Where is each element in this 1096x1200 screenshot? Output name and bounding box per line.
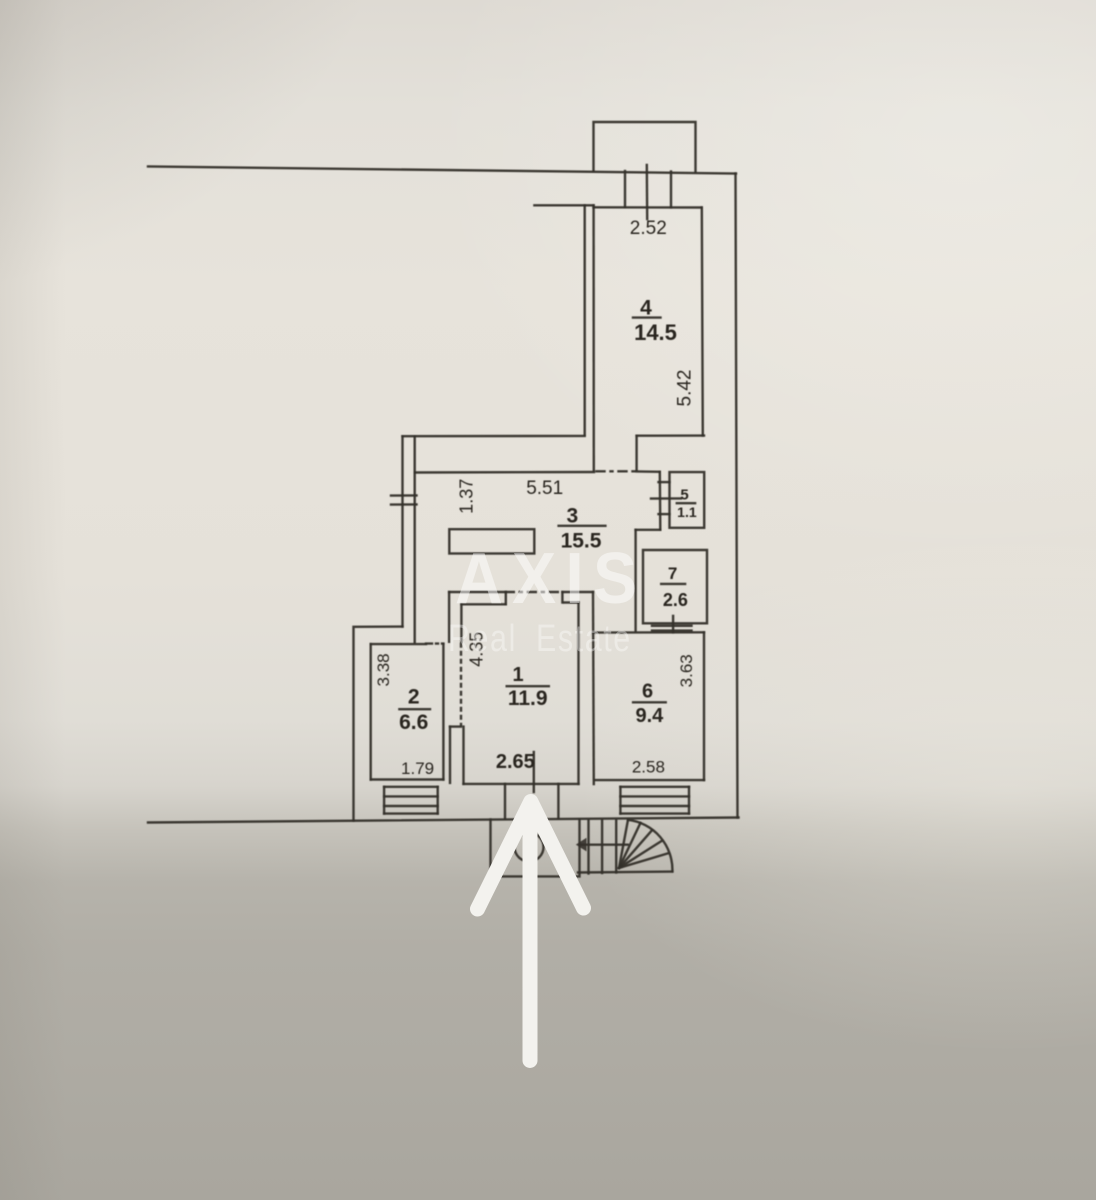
svg-text:2.65: 2.65 <box>496 751 535 773</box>
svg-text:6: 6 <box>642 681 653 703</box>
svg-text:4: 4 <box>640 297 652 320</box>
svg-text:3.63: 3.63 <box>677 654 696 687</box>
svg-text:1.37: 1.37 <box>457 479 477 514</box>
svg-text:1.79: 1.79 <box>401 759 434 778</box>
svg-text:5: 5 <box>680 487 688 504</box>
svg-text:14.5: 14.5 <box>634 320 677 345</box>
svg-text:2: 2 <box>408 686 420 709</box>
svg-text:5.51: 5.51 <box>526 478 563 499</box>
svg-text:2.6: 2.6 <box>663 590 688 610</box>
svg-text:2.52: 2.52 <box>630 218 667 239</box>
svg-text:9.4: 9.4 <box>635 705 664 727</box>
svg-text:7: 7 <box>668 564 677 583</box>
svg-text:3.38: 3.38 <box>374 653 393 686</box>
svg-text:2.58: 2.58 <box>632 758 665 777</box>
svg-text:11.9: 11.9 <box>508 687 548 710</box>
svg-text:3: 3 <box>566 505 578 528</box>
svg-text:1: 1 <box>512 664 523 686</box>
svg-text:6.6: 6.6 <box>399 711 428 734</box>
svg-text:1.1: 1.1 <box>677 504 697 520</box>
svg-text:5.42: 5.42 <box>675 370 696 407</box>
